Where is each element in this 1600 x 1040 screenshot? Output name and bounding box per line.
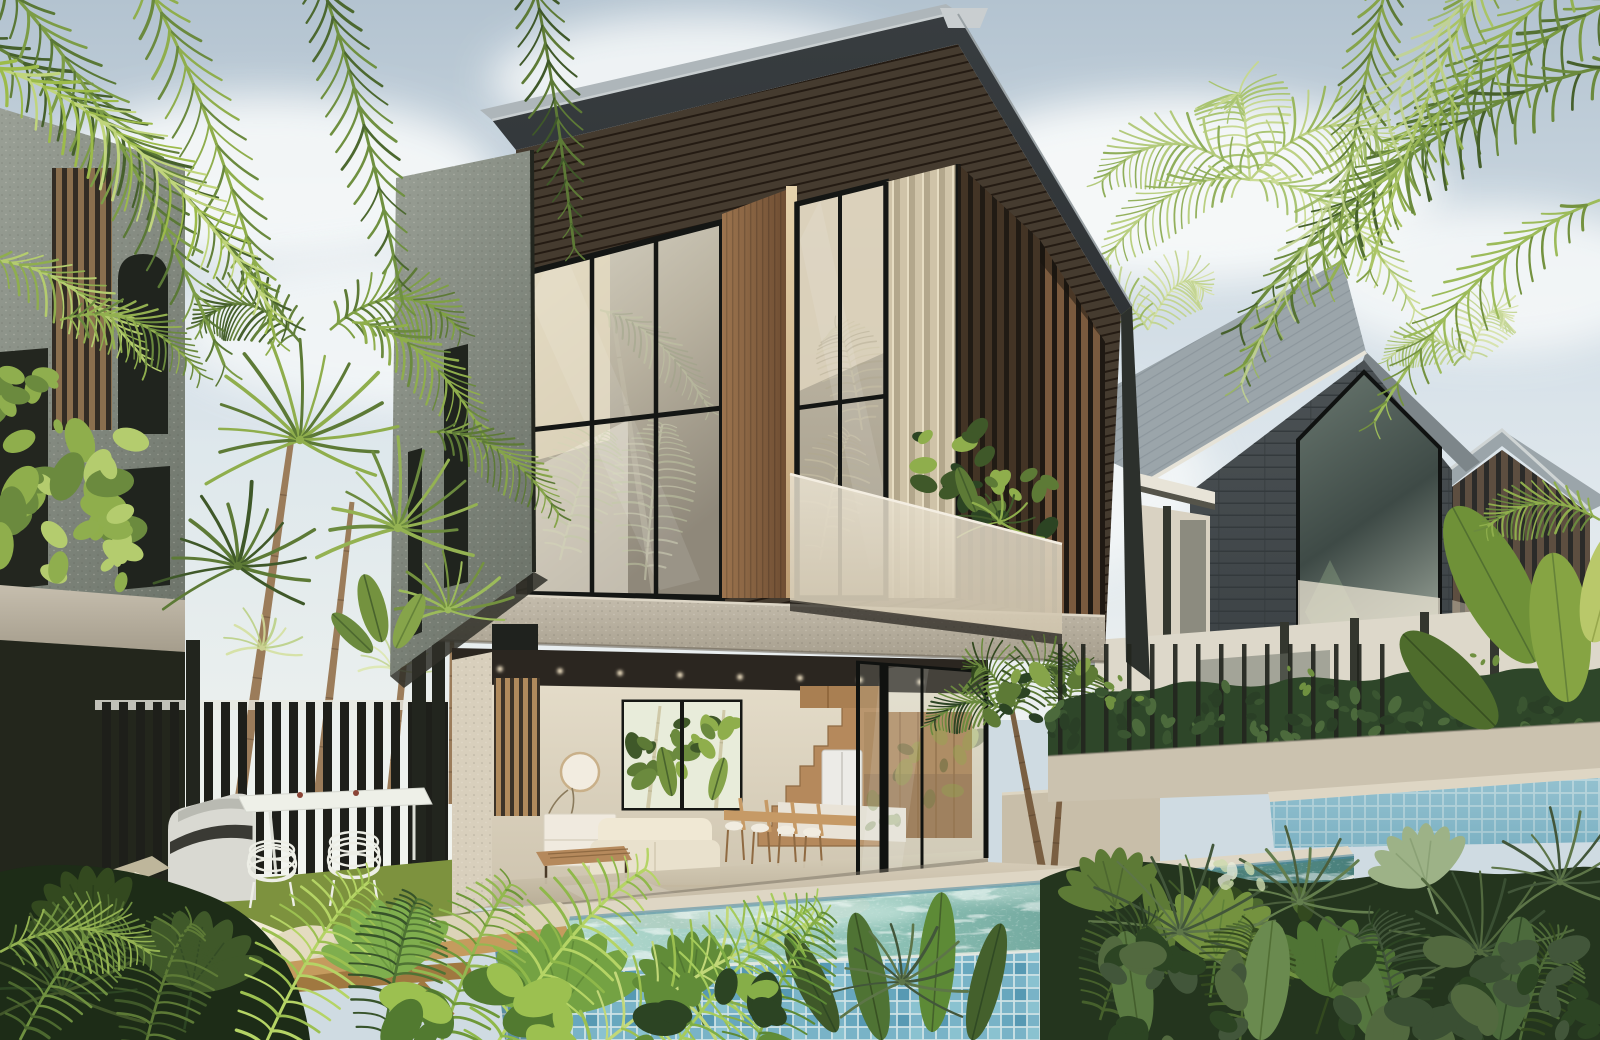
table-decor-b <box>353 790 359 796</box>
rendered-photo <box>0 0 1600 1040</box>
round-mirror <box>561 753 599 791</box>
table-decor-a <box>297 792 303 798</box>
wood-panel-grain <box>722 190 786 598</box>
villa-scene <box>0 0 1600 1040</box>
left-villa-window-upper <box>118 254 168 434</box>
clerestory-slot <box>492 624 538 650</box>
stucco-texture <box>452 652 492 916</box>
volume-edge <box>532 150 534 572</box>
timber-screen <box>494 678 540 816</box>
